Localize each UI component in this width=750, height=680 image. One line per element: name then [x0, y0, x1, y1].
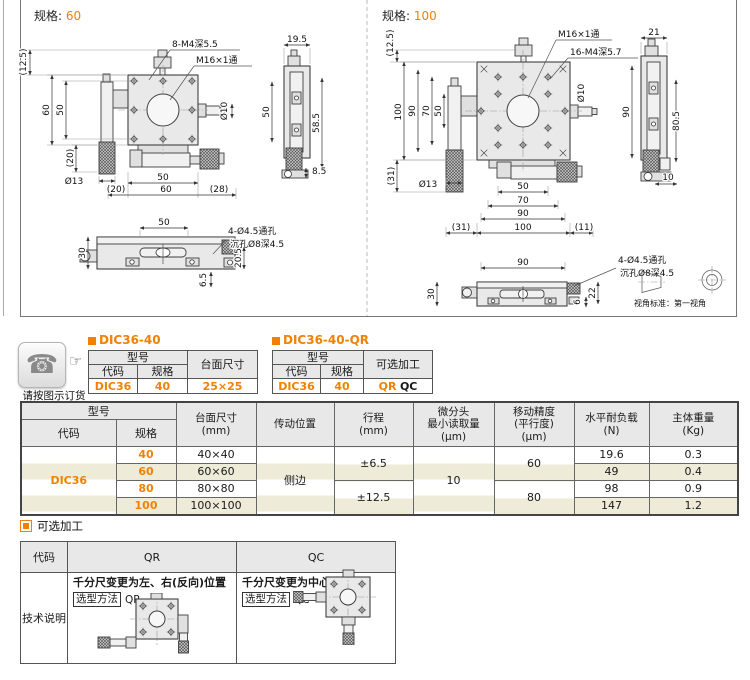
code-header: 代码 [273, 365, 321, 379]
dim-label: 90 [622, 106, 632, 118]
spec60-front-view [99, 50, 225, 174]
model-header: 型号 [273, 351, 364, 365]
hole-callout: 4-Ø4.5通孔 [228, 226, 276, 237]
orange-square-icon [20, 520, 32, 532]
travel-header: 行程(mm) [334, 402, 413, 447]
dim-label: 80.5 [672, 111, 682, 131]
load-100: 147 [574, 498, 649, 516]
qc-stage-drawing [293, 565, 393, 645]
qr-header: QR [68, 542, 237, 573]
dim-label: 50 [157, 173, 169, 183]
hole-callout: 4-Ø4.5通孔 [618, 255, 666, 266]
optional-section-title: 可选加工 [20, 518, 83, 534]
spec-60: 60 [116, 464, 176, 481]
dim-label: (31) [452, 223, 470, 233]
dim-label: 90 [517, 209, 529, 219]
surface-60: 60×60 [176, 464, 256, 481]
surface-value: 25×25 [188, 379, 258, 394]
dim-label: 6.5 [199, 273, 209, 287]
thread-callout: 16-M4深5.7 [570, 47, 622, 58]
dim-label: 19.5 [287, 35, 307, 45]
dim-label: (20) [66, 149, 76, 167]
dim-label: 90 [517, 258, 529, 268]
code-header: 代码 [21, 420, 116, 447]
dim-label: (12.5) [386, 29, 396, 56]
mass-80: 0.9 [649, 481, 738, 498]
spec-header: 规格 [321, 365, 364, 379]
model-header: 型号 [89, 351, 188, 365]
travel-small: ±6.5 [334, 447, 413, 481]
spec-header: 规格 [138, 365, 188, 379]
dim-label: 30 [78, 247, 88, 259]
code-value: DIC36 [21, 447, 116, 516]
dim-label: (11) [575, 223, 593, 233]
travel-large: ±12.5 [334, 481, 413, 516]
spec-100: 100 [116, 498, 176, 516]
spec-header: 规格 [116, 420, 176, 447]
code-value: DIC36 [273, 379, 321, 394]
dim-label: 50 [158, 218, 170, 228]
order-table1: 型号 台面尺寸 代码 规格 DIC36 40 25×25 [88, 350, 258, 394]
load-60: 49 [574, 464, 649, 481]
technical-drawings: (12.5) 60 50 (20) Ø13 8-M4深5.5 M16×1通 Ø1… [0, 0, 750, 318]
hole-callout: 沉孔Ø8深4.5 [620, 268, 674, 279]
dim-label: 10 [662, 173, 674, 183]
thread-callout: 8-M4深5.5 [172, 39, 218, 50]
qr-stage-drawing [96, 593, 216, 655]
dim-label: 30 [427, 288, 437, 300]
load-40: 19.6 [574, 447, 649, 464]
dim-label: (28) [210, 185, 228, 195]
qr-description: 千分尺变更为左、右(反向)位置 [73, 576, 231, 590]
dim-label: Ø10 [219, 101, 230, 120]
mass-100: 1.2 [649, 498, 738, 516]
dim-label: Ø10 [576, 83, 587, 102]
dim-label: 50 [262, 106, 272, 118]
thread-callout: M16×1通 [196, 55, 238, 66]
accuracy-large: 80 [494, 481, 574, 516]
spec-value: 40 [321, 379, 364, 394]
dim-label: 60 [160, 185, 172, 195]
catalog-page: 规格: 60 规格: 100 [0, 0, 750, 680]
min-reading-header: 微分头最小读取量(μm) [413, 402, 494, 447]
thread-callout: M16×1通 [558, 29, 600, 40]
dim-label: 50 [434, 105, 444, 117]
drive-position-header: 传动位置 [256, 402, 334, 447]
surface-80: 80×80 [176, 481, 256, 498]
spec-table: 型号 台面尺寸(mm) 传动位置 行程(mm) 微分头最小读取量(μm) 移动精… [20, 401, 739, 516]
qr-cell: 千分尺变更为左、右(反向)位置 选型方法 QR [68, 573, 237, 664]
dim-label: 21 [648, 28, 659, 38]
surface-40: 40×40 [176, 447, 256, 464]
dim-label: 100 [394, 103, 404, 120]
code-header: 代码 [89, 365, 138, 379]
spec100-front-view [446, 38, 597, 192]
projection-note: 视角标准：第一视角 [634, 298, 706, 308]
surface-header: 台面尺寸(mm) [176, 402, 256, 447]
spec-40: 40 [116, 447, 176, 464]
option-header: 可选加工 [364, 351, 433, 379]
spec-80: 80 [116, 481, 176, 498]
dim-label: 60 [42, 104, 52, 116]
spec-value: 40 [138, 379, 188, 394]
surface-header: 台面尺寸 [188, 351, 258, 379]
surface-100: 100×100 [176, 498, 256, 516]
accuracy-header: 移动精度(平行度)(μm) [494, 402, 574, 447]
order-table2-title: DIC36-40-QR [272, 333, 369, 347]
dim-label: 70 [517, 196, 529, 206]
mass-60: 0.4 [649, 464, 738, 481]
dim-label: 20.5 [234, 248, 244, 268]
code-header: 代码 [21, 542, 68, 573]
dim-label: 8.5 [312, 167, 326, 177]
drive-position-value: 侧边 [256, 447, 334, 516]
dim-label: 90 [408, 105, 418, 117]
min-reading-value: 10 [413, 447, 494, 516]
dim-label: 70 [422, 105, 432, 117]
mass-header: 主体重量(Kg) [649, 402, 738, 447]
dim-label: (20) [107, 185, 125, 195]
dim-label: Ø13 [65, 176, 84, 187]
method-box-label: 选型方法 [242, 592, 290, 607]
telephone-icon: ☎ [26, 350, 58, 380]
load-80: 98 [574, 481, 649, 498]
spec60-side-view [282, 50, 310, 178]
accuracy-small: 60 [494, 447, 574, 481]
tech-note-label: 技术说明 [21, 573, 68, 664]
dim-label: (31) [387, 167, 397, 185]
code-value: DIC36 [89, 379, 138, 394]
order-table1-title: DIC36-40 [88, 333, 161, 347]
option-values: QR QC [364, 379, 433, 394]
spec100-bottom-view [462, 282, 580, 306]
dim-label: 58.5 [312, 113, 322, 133]
square-bullet-icon [272, 337, 280, 345]
mass-40: 0.3 [649, 447, 738, 464]
order-table2: 型号 可选加工 代码 规格 DIC36 40 QR QC [272, 350, 433, 394]
optional-table: 代码 QR QC 技术说明 千分尺变更为左、右(反向)位置 选型方法 QR [20, 541, 396, 664]
pointing-hand-icon: ☞ [69, 352, 82, 370]
spec100-side-view [641, 39, 671, 181]
dim-label: 50 [517, 182, 529, 192]
dim-label: 100 [514, 223, 531, 233]
square-bullet-icon [88, 337, 96, 345]
dim-label: 6 [573, 299, 583, 305]
qc-cell: 千分尺变更为中心位置 选型方法 QC [237, 573, 396, 664]
phone-order-icon: ☎ [18, 342, 66, 388]
dim-label: Ø13 [419, 179, 438, 190]
load-header: 水平耐负载(N) [574, 402, 649, 447]
model-header: 型号 [21, 402, 176, 420]
dim-label: 22 [588, 287, 598, 298]
dim-label: 50 [56, 104, 66, 116]
dim-label: (12.5) [19, 48, 29, 75]
